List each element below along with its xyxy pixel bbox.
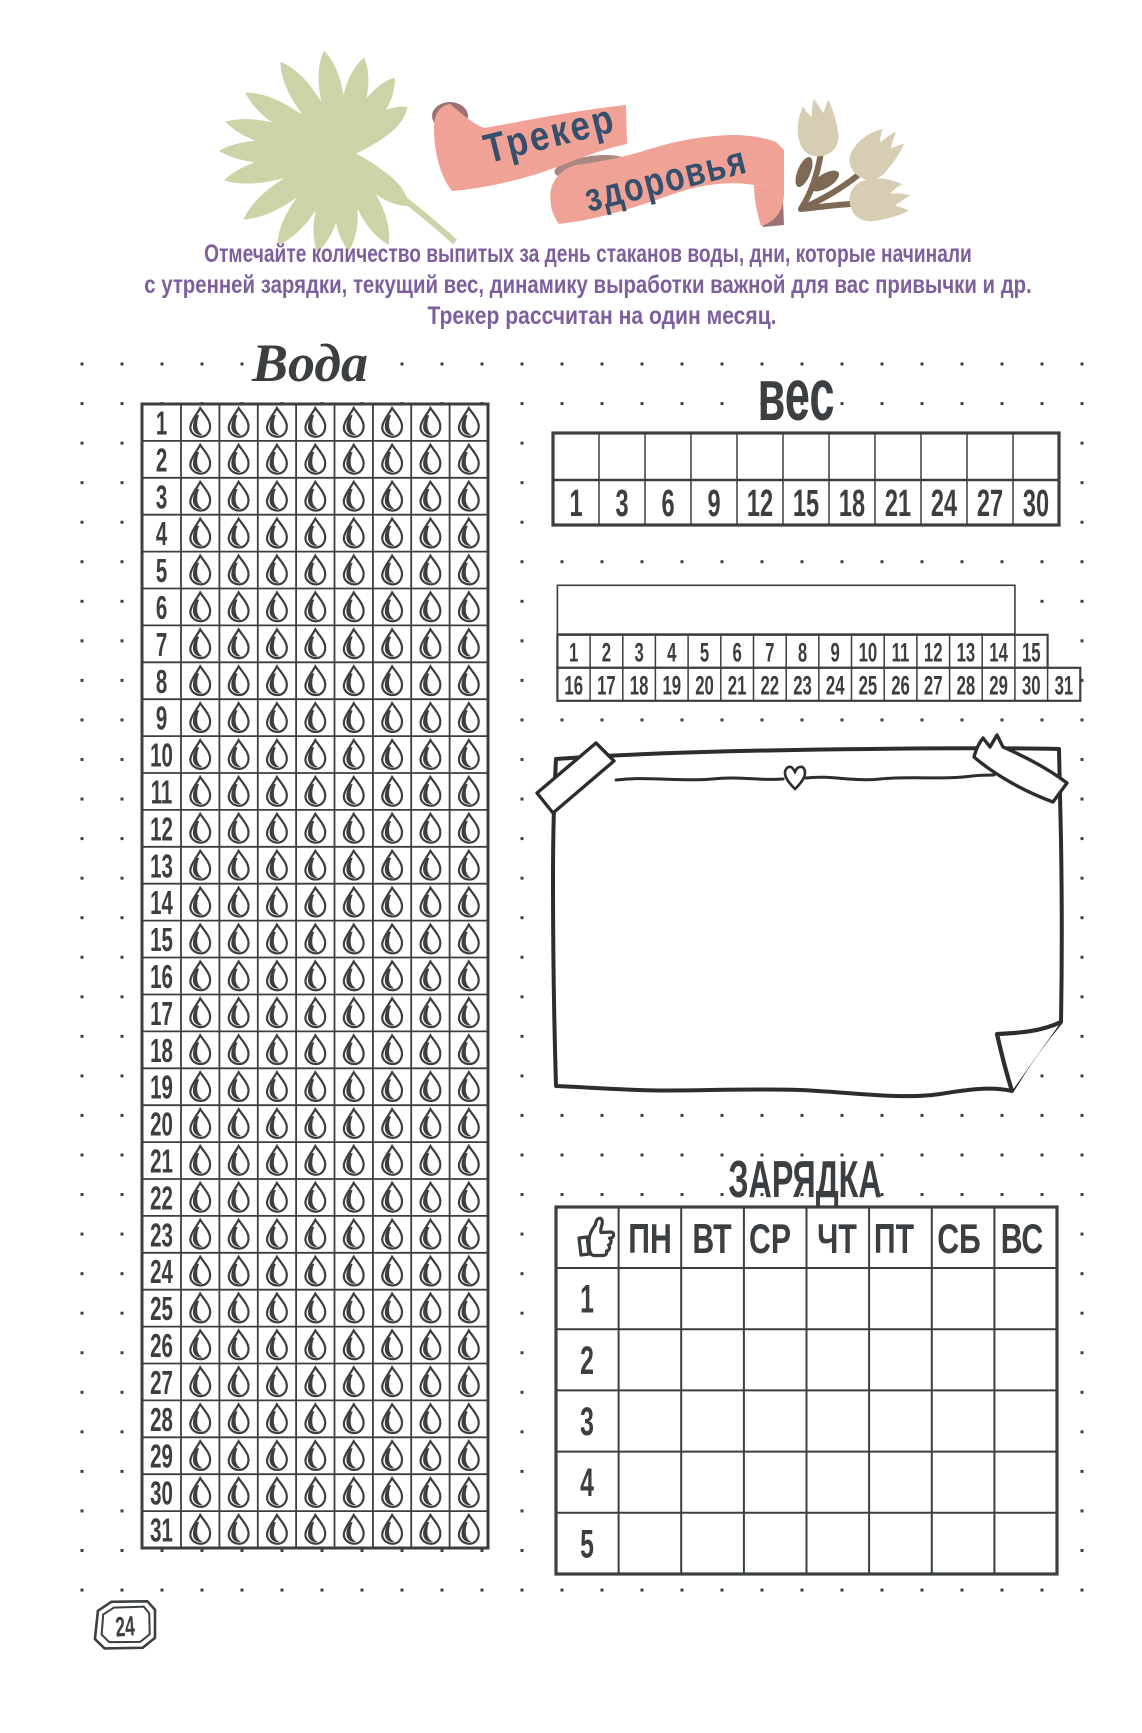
svg-text:9: 9 <box>156 700 167 737</box>
svg-text:25: 25 <box>859 670 878 700</box>
svg-text:15: 15 <box>150 921 173 958</box>
svg-text:15: 15 <box>1022 637 1041 667</box>
svg-text:ПТ: ПТ <box>874 1215 914 1262</box>
svg-text:1: 1 <box>569 637 578 667</box>
svg-text:8: 8 <box>798 637 807 667</box>
svg-text:18: 18 <box>150 1032 173 1069</box>
svg-text:18: 18 <box>839 481 865 524</box>
svg-text:5: 5 <box>580 1523 594 1567</box>
svg-text:13: 13 <box>957 637 976 667</box>
svg-text:ЧТ: ЧТ <box>817 1215 857 1262</box>
svg-text:14: 14 <box>150 884 173 921</box>
svg-text:2: 2 <box>580 1339 594 1383</box>
svg-text:27: 27 <box>924 670 943 700</box>
svg-text:10: 10 <box>859 637 878 667</box>
svg-text:ПН: ПН <box>628 1215 672 1262</box>
svg-text:26: 26 <box>891 670 910 700</box>
svg-text:17: 17 <box>150 995 173 1032</box>
svg-text:23: 23 <box>793 670 812 700</box>
svg-text:25: 25 <box>150 1290 173 1327</box>
svg-text:5: 5 <box>700 637 709 667</box>
svg-text:12: 12 <box>150 810 173 847</box>
svg-text:3: 3 <box>156 478 167 515</box>
svg-text:3: 3 <box>634 637 643 667</box>
svg-text:21: 21 <box>728 670 747 700</box>
svg-text:23: 23 <box>150 1216 173 1253</box>
svg-text:9: 9 <box>707 481 720 524</box>
svg-text:16: 16 <box>564 670 583 700</box>
svg-text:2: 2 <box>156 441 167 478</box>
svg-text:2: 2 <box>602 637 611 667</box>
svg-text:4: 4 <box>156 515 168 552</box>
svg-text:6: 6 <box>156 589 167 626</box>
svg-text:21: 21 <box>150 1142 173 1179</box>
svg-text:31: 31 <box>1055 670 1074 700</box>
svg-text:26: 26 <box>150 1327 173 1364</box>
svg-text:12: 12 <box>924 637 943 667</box>
svg-text:6: 6 <box>732 637 741 667</box>
svg-text:28: 28 <box>957 670 976 700</box>
svg-text:27: 27 <box>150 1364 173 1401</box>
svg-text:24: 24 <box>114 1610 135 1643</box>
svg-text:30: 30 <box>1023 481 1049 524</box>
svg-text:20: 20 <box>150 1106 173 1143</box>
svg-text:16: 16 <box>150 958 173 995</box>
svg-text:29: 29 <box>150 1438 173 1475</box>
svg-text:3: 3 <box>580 1400 594 1444</box>
svg-text:22: 22 <box>150 1179 173 1216</box>
svg-text:8: 8 <box>156 663 167 700</box>
svg-text:1: 1 <box>580 1278 594 1322</box>
svg-text:20: 20 <box>695 670 714 700</box>
svg-text:7: 7 <box>156 626 167 663</box>
svg-text:7: 7 <box>765 637 774 667</box>
svg-text:9: 9 <box>831 637 840 667</box>
svg-text:18: 18 <box>630 670 649 700</box>
svg-text:5: 5 <box>156 552 167 589</box>
svg-text:1: 1 <box>156 404 167 441</box>
svg-text:13: 13 <box>150 847 173 884</box>
svg-text:24: 24 <box>826 670 845 700</box>
svg-text:15: 15 <box>793 481 819 524</box>
svg-text:1: 1 <box>569 481 582 524</box>
svg-text:29: 29 <box>989 670 1008 700</box>
svg-text:27: 27 <box>977 481 1003 524</box>
svg-text:4: 4 <box>667 637 677 667</box>
svg-text:11: 11 <box>151 773 173 810</box>
svg-text:ВС: ВС <box>1001 1215 1044 1262</box>
svg-text:19: 19 <box>150 1069 173 1106</box>
svg-text:21: 21 <box>885 481 911 524</box>
svg-text:12: 12 <box>747 481 773 524</box>
svg-text:31: 31 <box>150 1511 173 1548</box>
svg-text:28: 28 <box>150 1401 173 1438</box>
svg-text:17: 17 <box>597 670 616 700</box>
svg-text:СБ: СБ <box>937 1215 981 1262</box>
svg-text:14: 14 <box>989 637 1008 667</box>
svg-text:19: 19 <box>662 670 681 700</box>
svg-text:10: 10 <box>150 737 173 774</box>
svg-text:22: 22 <box>760 670 779 700</box>
svg-text:4: 4 <box>580 1461 594 1505</box>
svg-text:СР: СР <box>749 1215 791 1262</box>
svg-text:11: 11 <box>892 637 910 667</box>
svg-text:30: 30 <box>1022 670 1041 700</box>
svg-text:6: 6 <box>661 481 674 524</box>
svg-text:ВТ: ВТ <box>692 1215 731 1262</box>
svg-text:30: 30 <box>150 1475 173 1512</box>
svg-text:3: 3 <box>615 481 628 524</box>
svg-text:24: 24 <box>931 481 958 524</box>
svg-text:24: 24 <box>150 1253 173 1290</box>
